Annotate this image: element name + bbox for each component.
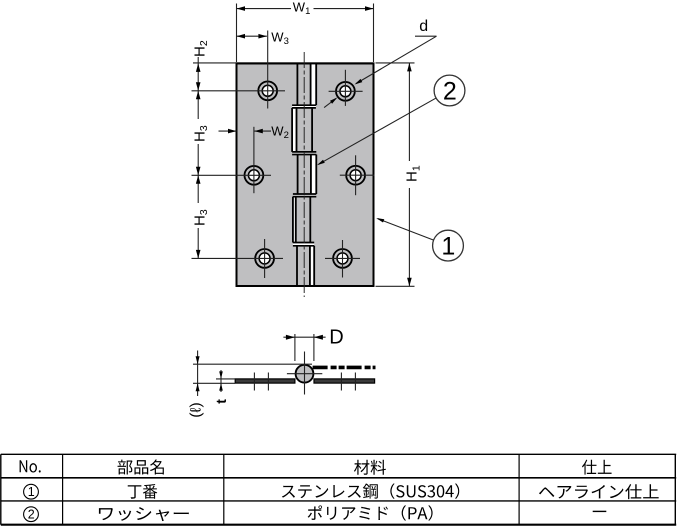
svg-text:W3: W3: [271, 29, 289, 47]
svg-text:H2: H2: [192, 40, 211, 57]
svg-text:H1: H1: [404, 165, 423, 182]
svg-text:H3: H3: [191, 125, 210, 142]
svg-text:d: d: [419, 18, 428, 35]
svg-text:t: t: [213, 399, 229, 404]
svg-text:2: 2: [28, 508, 35, 522]
svg-text:(ℓ): (ℓ): [188, 402, 205, 418]
svg-text:D: D: [329, 327, 343, 349]
svg-text:1: 1: [28, 485, 35, 499]
svg-text:H3: H3: [191, 209, 210, 226]
svg-text:W1: W1: [293, 0, 311, 17]
svg-text:2: 2: [443, 77, 457, 105]
svg-text:1: 1: [441, 232, 455, 260]
